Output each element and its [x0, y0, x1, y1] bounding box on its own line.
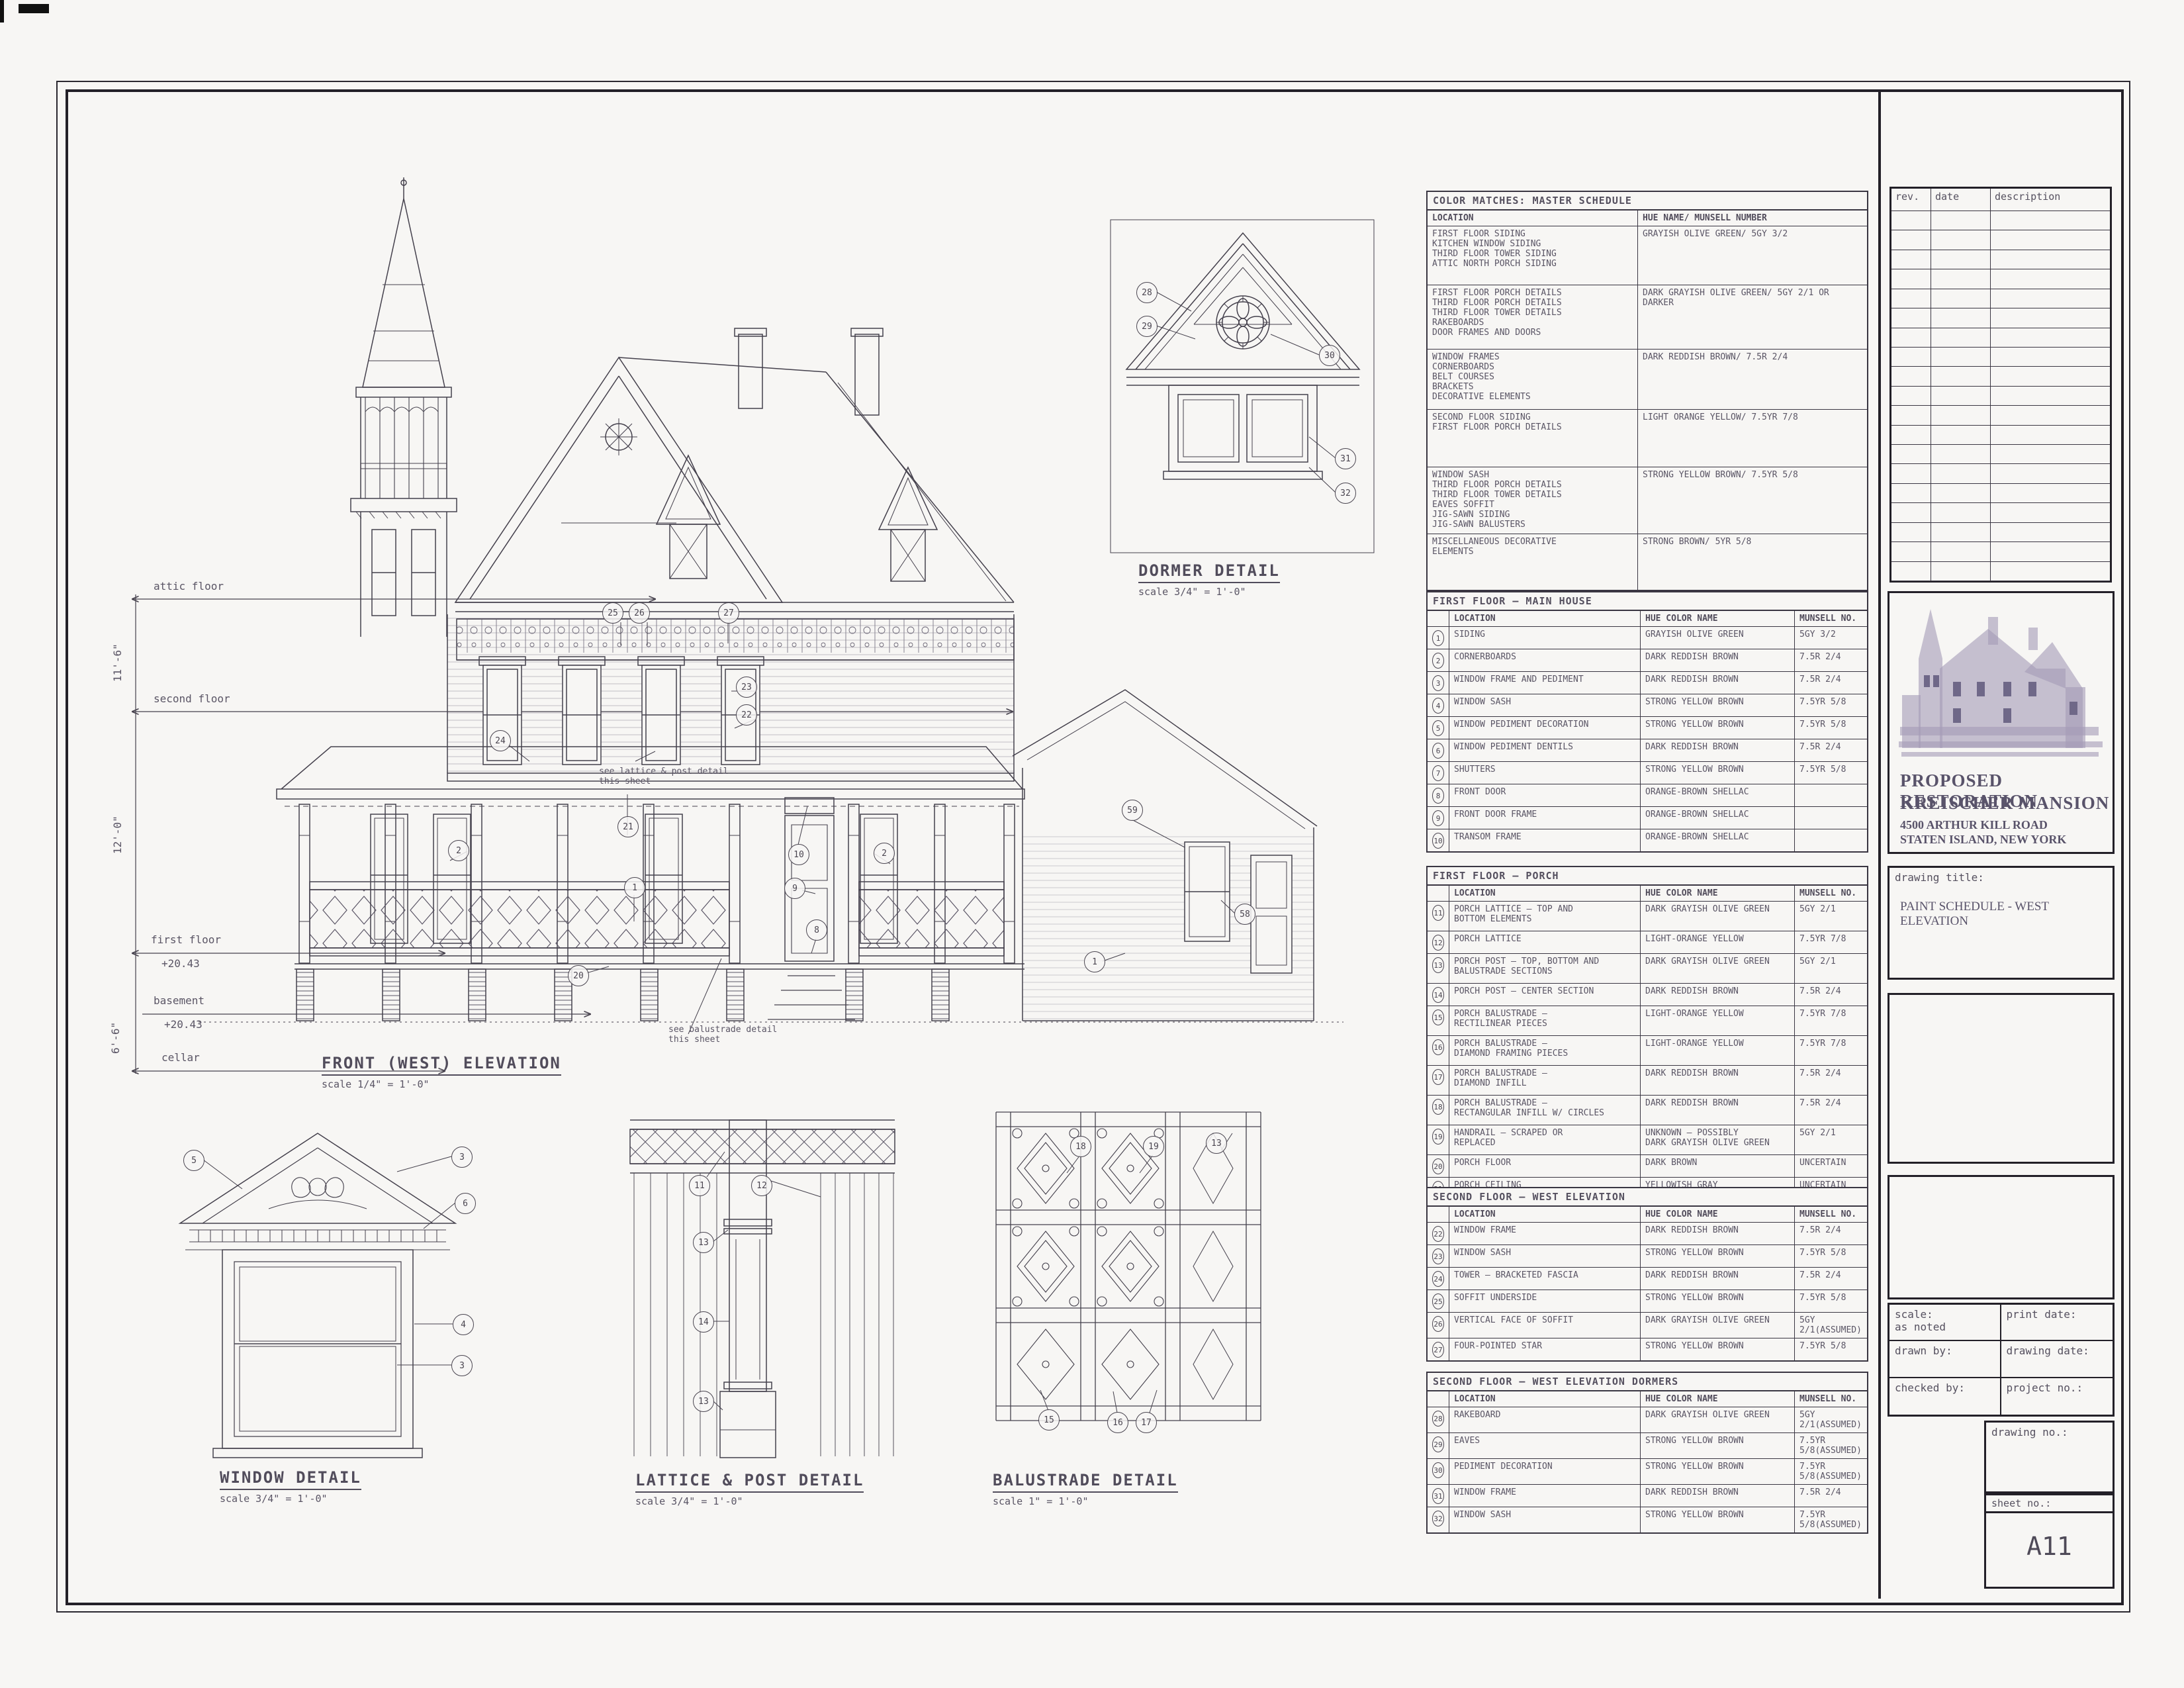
- location-cell: PORCH BALUSTRADE – RECTANGULAR INFILL W/…: [1449, 1096, 1641, 1125]
- munsell-cell: UNCERTAIN: [1795, 1155, 1867, 1177]
- schedule-row: 26VERTICAL FACE OF SOFFITDARK GRAYISH OL…: [1428, 1313, 1867, 1338]
- munsell-cell: [1795, 807, 1867, 829]
- table-title: FIRST FLOOR – PORCH: [1428, 867, 1867, 886]
- window-scale: scale 3/4" = 1'-0": [220, 1493, 361, 1505]
- schedule-row: 1SIDINGGRAYISH OLIVE GREEN5GY 3/2: [1428, 627, 1867, 649]
- titleblock-divider: [1878, 92, 1881, 1599]
- location-cell: FIRST FLOOR SIDING KITCHEN WINDOW SIDING…: [1428, 226, 1638, 285]
- munsell-cell: 7.5YR 5/8(ASSUMED): [1795, 1433, 1867, 1458]
- hue-cell: LIGHT-ORANGE YELLOW: [1641, 1006, 1795, 1035]
- location-cell: SHUTTERS: [1449, 762, 1641, 784]
- callout-number-cell: 25: [1428, 1290, 1449, 1312]
- callout-22: 22: [736, 704, 757, 726]
- hue-cell: DARK GRAYISH OLIVE GREEN: [1641, 1313, 1795, 1338]
- location-cell: FRONT DOOR: [1449, 784, 1641, 806]
- location-cell: WINDOW PEDIMENT DENTILS: [1449, 739, 1641, 761]
- callout-27: 27: [718, 602, 739, 624]
- dimension-label: +20.43: [164, 1018, 203, 1031]
- revision-row: [1891, 348, 2110, 367]
- callout-30: 30: [1319, 345, 1340, 366]
- lattice-scale: scale 3/4" = 1'-0": [635, 1495, 864, 1507]
- column-header: HUE NAME/ MUNSELL NUMBER: [1638, 211, 1867, 226]
- munsell-cell: 7.5R 2/4: [1795, 1485, 1867, 1507]
- munsell-cell: 7.5YR 5/8: [1795, 1245, 1867, 1267]
- drawing-date-label: drawing date:: [2007, 1344, 2089, 1357]
- munsell-cell: 7.5YR 5/8(ASSUMED): [1795, 1459, 1867, 1484]
- drawn-by-label: drawn by:: [1895, 1344, 1952, 1357]
- callout-circle: 18: [1432, 1099, 1444, 1115]
- balustrade-label: BALUSTRADE DETAIL scale 1" = 1'-0": [993, 1471, 1178, 1507]
- hue-cell: DARK BROWN: [1641, 1155, 1795, 1177]
- mansion-logo: [1899, 602, 2107, 768]
- callout-21: 21: [617, 816, 639, 837]
- value-cell: LIGHT ORANGE YELLOW/ 7.5YR 7/8: [1638, 410, 1867, 467]
- callout-number-cell: 8: [1428, 784, 1449, 806]
- location-cell: WINDOW FRAME: [1449, 1223, 1641, 1244]
- elevation-dormers: [657, 455, 937, 581]
- elevation-note: see lattice & post detail this sheet: [599, 767, 729, 786]
- dimension-label: attic floor: [154, 580, 224, 592]
- callout-8: 8: [806, 919, 827, 941]
- lattice-band: [630, 1120, 895, 1173]
- balustrade-scale: scale 1" = 1'-0": [993, 1495, 1178, 1507]
- sheet-no-label: sheet no.:: [1986, 1495, 2113, 1513]
- callout-circle: 2: [1432, 653, 1444, 669]
- callout-circle: 15: [1432, 1009, 1444, 1025]
- callout-number-cell: 26: [1428, 1313, 1449, 1338]
- hue-cell: DARK REDDISH BROWN: [1641, 1268, 1795, 1289]
- schedule-row: 28RAKEBOARDDARK GRAYISH OLIVE GREEN5GY 2…: [1428, 1407, 1867, 1433]
- project-address2: STATEN ISLAND, NEW YORK: [1900, 833, 2066, 847]
- revision-row: [1891, 328, 2110, 348]
- munsell-cell: 7.5R 2/4: [1795, 672, 1867, 694]
- callout-circle: 9: [1432, 810, 1444, 826]
- callout-number-cell: 13: [1428, 954, 1449, 983]
- callout-circle: 11: [1432, 905, 1444, 921]
- revision-row: [1891, 562, 2110, 581]
- number-header: [1428, 1391, 1449, 1407]
- callout-circle: 22: [1432, 1226, 1444, 1242]
- location-cell: WINDOW SASH: [1449, 694, 1641, 716]
- window-detail-drawing: [162, 1119, 493, 1463]
- location-cell: VERTICAL FACE OF SOFFIT: [1449, 1313, 1641, 1338]
- table-title: SECOND FLOOR – WEST ELEVATION DORMERS: [1428, 1373, 1867, 1391]
- schedule-row: 24TOWER – BRACKETED FASCIADARK REDDISH B…: [1428, 1268, 1867, 1290]
- hue-cell: DARK REDDISH BROWN: [1641, 649, 1795, 671]
- callout-circle: 26: [1432, 1316, 1444, 1332]
- munsell-cell: 5GY 2/1: [1795, 954, 1867, 983]
- hue-cell: DARK REDDISH BROWN: [1641, 984, 1795, 1006]
- location-cell: HANDRAIL – SCRAPED OR REPLACED: [1449, 1125, 1641, 1154]
- munsell-cell: 7.5R 2/4: [1795, 739, 1867, 761]
- callout-circle: 1: [1432, 630, 1444, 646]
- munsell-cell: 7.5YR 5/8: [1795, 717, 1867, 739]
- value-cell: STRONG YELLOW BROWN/ 7.5YR 5/8: [1638, 467, 1867, 534]
- schedule-row: WINDOW SASH THIRD FLOOR PORCH DETAILS TH…: [1428, 467, 1867, 534]
- location-cell: SIDING: [1449, 627, 1641, 649]
- callout-number-cell: 23: [1428, 1245, 1449, 1267]
- dimension-label: +20.43: [161, 957, 200, 970]
- porch-balustrade: [310, 882, 1004, 956]
- callout-number-cell: 10: [1428, 829, 1449, 851]
- schedule-row: 14PORCH POST – CENTER SECTIONDARK REDDIS…: [1428, 984, 1867, 1006]
- elevation-note: see balustrade detail this sheet: [668, 1025, 777, 1045]
- location-cell: MISCELLANEOUS DECORATIVE ELEMENTS: [1428, 534, 1638, 590]
- project-no-label: project no.:: [2007, 1382, 2083, 1394]
- scale-label: scale:: [1895, 1308, 1933, 1321]
- column-header: HUE COLOR NAME: [1641, 611, 1795, 626]
- lattice-post-detail-drawing: [625, 1105, 900, 1460]
- schedule-row: SECOND FLOOR SIDING FIRST FLOOR PORCH DE…: [1428, 410, 1867, 467]
- callout-circle: 27: [1432, 1342, 1444, 1358]
- munsell-cell: 5GY 2/1: [1795, 1125, 1867, 1154]
- callout-11: 11: [689, 1175, 710, 1196]
- schedule-row: 12PORCH LATTICELIGHT-ORANGE YELLOW7.5YR …: [1428, 931, 1867, 954]
- callout-12: 12: [751, 1175, 772, 1196]
- munsell-cell: 7.5R 2/4: [1795, 1223, 1867, 1244]
- callout-25: 25: [602, 602, 623, 624]
- dimension-label: first floor: [151, 933, 221, 946]
- location-cell: EAVES: [1449, 1433, 1641, 1458]
- callout-circle: 19: [1432, 1129, 1444, 1145]
- hue-cell: STRONG YELLOW BROWN: [1641, 1433, 1795, 1458]
- schedule-row: 10TRANSOM FRAMEORANGE-BROWN SHELLAC: [1428, 829, 1867, 851]
- location-cell: PORCH BALUSTRADE – RECTILINEAR PIECES: [1449, 1006, 1641, 1035]
- sheet: FRONT (WEST) ELEVATION scale 1/4" = 1'-0…: [0, 0, 2184, 1688]
- hue-cell: STRONG YELLOW BROWN: [1641, 762, 1795, 784]
- location-cell: PEDIMENT DECORATION: [1449, 1459, 1641, 1484]
- callout-2: 2: [874, 843, 895, 864]
- location-cell: RAKEBOARD: [1449, 1407, 1641, 1432]
- hue-cell: STRONG YELLOW BROWN: [1641, 717, 1795, 739]
- location-cell: SOFFIT UNDERSIDE: [1449, 1290, 1641, 1312]
- elevation-scale: scale 1/4" = 1'-0": [322, 1078, 561, 1090]
- callout-number-cell: 5: [1428, 717, 1449, 739]
- elevation-title: FRONT (WEST) ELEVATION: [322, 1054, 561, 1076]
- callout-number-cell: 30: [1428, 1459, 1449, 1484]
- munsell-cell: 7.5R 2/4: [1795, 1268, 1867, 1289]
- callout-circle: 8: [1432, 788, 1444, 804]
- value-cell: STRONG BROWN/ 5YR 5/8: [1638, 534, 1867, 590]
- first-floor-porch-table: FIRST FLOOR – PORCHLOCATIONHUE COLOR NAM…: [1426, 866, 1868, 1201]
- callout-circle: 31: [1432, 1488, 1444, 1504]
- callout-number-cell: 3: [1428, 672, 1449, 694]
- callout-16: 16: [1107, 1412, 1128, 1433]
- schedule-row: 16PORCH BALUSTRADE – DIAMOND FRAMING PIE…: [1428, 1036, 1867, 1066]
- callout-number-cell: 19: [1428, 1125, 1449, 1154]
- number-header: [1428, 611, 1449, 626]
- location-cell: WINDOW FRAMES CORNERBOARDS BELT COURSES …: [1428, 350, 1638, 409]
- dimension-label: basement: [154, 994, 205, 1007]
- callout-number-cell: 9: [1428, 807, 1449, 829]
- right-wing: [1013, 690, 1317, 1021]
- dimension-label: 11'-6": [111, 643, 124, 682]
- drawing-title-label: drawing title:: [1895, 871, 1984, 884]
- sheet-no-value: A11: [1986, 1513, 2113, 1579]
- hue-cell: ORANGE-BROWN SHELLAC: [1641, 807, 1795, 829]
- callout-24: 24: [490, 730, 511, 751]
- first-floor-main-house-table: FIRST FLOOR – MAIN HOUSELOCATIONHUE COLO…: [1426, 591, 1868, 853]
- rev-header: rev.: [1891, 189, 1931, 211]
- location-cell: FIRST FLOOR PORCH DETAILS THIRD FLOOR PO…: [1428, 285, 1638, 349]
- munsell-cell: 5GY 2/1(ASSUMED): [1795, 1407, 1867, 1432]
- table-title: COLOR MATCHES: MASTER SCHEDULE: [1428, 192, 1867, 211]
- callout-59: 59: [1122, 800, 1143, 821]
- callout-13: 13: [1206, 1133, 1227, 1154]
- checked-by-label: checked by:: [1895, 1382, 1965, 1394]
- sheet-no-block: sheet no.: A11: [1984, 1493, 2115, 1589]
- dimension-label: 6'-6": [109, 1022, 122, 1054]
- second-floor-dormers-table: SECOND FLOOR – WEST ELEVATION DORMERSLOC…: [1426, 1372, 1868, 1534]
- callout-circle: 7: [1432, 765, 1444, 781]
- location-cell: TRANSOM FRAME: [1449, 829, 1641, 851]
- column-header: HUE COLOR NAME: [1641, 886, 1795, 901]
- hue-cell: STRONG YELLOW BROWN: [1641, 1507, 1795, 1532]
- schedule-row: 11PORCH LATTICE – TOP AND BOTTOM ELEMENT…: [1428, 902, 1867, 931]
- revision-row: [1891, 464, 2110, 483]
- callout-28: 28: [1136, 282, 1158, 303]
- schedule-row: 31WINDOW FRAMEDARK REDDISH BROWN7.5R 2/4: [1428, 1485, 1867, 1507]
- callout-32: 32: [1335, 483, 1356, 504]
- project-address1: 4500 ARTHUR KILL ROAD: [1900, 818, 2048, 832]
- dormer-title: DORMER DETAIL: [1138, 561, 1280, 583]
- callout-19: 19: [1143, 1136, 1164, 1157]
- callout-number-cell: 1: [1428, 627, 1449, 649]
- callout-circle: 4: [1432, 698, 1444, 714]
- schedule-row: 23WINDOW SASHSTRONG YELLOW BROWN7.5YR 5/…: [1428, 1245, 1867, 1268]
- schedule-row: WINDOW FRAMES CORNERBOARDS BELT COURSES …: [1428, 350, 1867, 410]
- column-header: HUE COLOR NAME: [1641, 1207, 1795, 1222]
- column-header: MUNSELL NO.: [1795, 886, 1867, 901]
- hue-cell: STRONG YELLOW BROWN: [1641, 1338, 1795, 1360]
- dormer-window: [1163, 385, 1322, 479]
- balustrade-title: BALUSTRADE DETAIL: [993, 1471, 1178, 1493]
- munsell-cell: 7.5YR 7/8: [1795, 1006, 1867, 1035]
- schedule-row: 30PEDIMENT DECORATIONSTRONG YELLOW BROWN…: [1428, 1459, 1867, 1485]
- number-header: [1428, 886, 1449, 901]
- column-header: LOCATION: [1449, 1391, 1641, 1407]
- callout-number-cell: 32: [1428, 1507, 1449, 1532]
- callout-circle: 13: [1432, 957, 1444, 973]
- column-header: LOCATION: [1449, 1207, 1641, 1222]
- callout-31: 31: [1335, 448, 1356, 469]
- callout-14: 14: [693, 1311, 714, 1333]
- callout-10: 10: [788, 844, 809, 865]
- location-cell: PORCH POST – TOP, BOTTOM AND BALUSTRADE …: [1449, 954, 1641, 983]
- schedule-row: 20PORCH FLOORDARK BROWNUNCERTAIN: [1428, 1155, 1867, 1178]
- location-cell: CORNERBOARDS: [1449, 649, 1641, 671]
- revision-row: [1891, 445, 2110, 464]
- second-floor-west-table: SECOND FLOOR – WEST ELEVATIONLOCATIONHUE…: [1426, 1187, 1868, 1362]
- location-cell: FRONT DOOR FRAME: [1449, 807, 1641, 829]
- munsell-cell: 7.5YR 5/8: [1795, 1290, 1867, 1312]
- column-header: HUE COLOR NAME: [1641, 1391, 1795, 1407]
- dormer-scale: scale 3/4" = 1'-0": [1138, 586, 1280, 598]
- second-story-wall: [447, 614, 1014, 781]
- lattice-title: LATTICE & POST DETAIL: [635, 1471, 864, 1493]
- location-cell: WINDOW SASH: [1449, 1507, 1641, 1532]
- location-cell: WINDOW FRAME AND PEDIMENT: [1449, 672, 1641, 694]
- callout-number-cell: 20: [1428, 1155, 1449, 1177]
- callout-circle: 23: [1432, 1248, 1444, 1264]
- window-dentils: [185, 1230, 450, 1250]
- revision-row: [1891, 406, 2110, 425]
- print-date-field: print date:: [2001, 1305, 2113, 1341]
- callout-number-cell: 2: [1428, 649, 1449, 671]
- munsell-cell: 7.5R 2/4: [1795, 1066, 1867, 1095]
- schedule-row: 2CORNERBOARDSDARK REDDISH BROWN7.5R 2/4: [1428, 649, 1867, 672]
- dimension-label: cellar: [161, 1051, 200, 1064]
- callout-number-cell: 28: [1428, 1407, 1449, 1432]
- elevation-label: FRONT (WEST) ELEVATION scale 1/4" = 1'-0…: [322, 1054, 561, 1090]
- munsell-cell: [1795, 829, 1867, 851]
- hue-cell: ORANGE-BROWN SHELLAC: [1641, 784, 1795, 806]
- project-identity-block: PROPOSED RESTORATION KREISCHER MANSION 4…: [1888, 591, 2115, 854]
- scan-artifact: [0, 0, 4, 23]
- schedule-row: 9FRONT DOOR FRAMEORANGE-BROWN SHELLAC: [1428, 807, 1867, 829]
- dimension-label: second floor: [154, 692, 230, 705]
- hue-cell: GRAYISH OLIVE GREEN: [1641, 627, 1795, 649]
- revision-table: rev. date description: [1889, 187, 2112, 583]
- callout-number-cell: 12: [1428, 931, 1449, 953]
- munsell-cell: 7.5R 2/4: [1795, 649, 1867, 671]
- schedule-row: FIRST FLOOR PORCH DETAILS THIRD FLOOR PO…: [1428, 285, 1867, 350]
- schedule-row: 27FOUR-POINTED STARSTRONG YELLOW BROWN7.…: [1428, 1338, 1867, 1360]
- callout-number-cell: 16: [1428, 1036, 1449, 1065]
- revision-row: [1891, 387, 2110, 406]
- date-header: date: [1931, 189, 1991, 211]
- schedule-row: 6WINDOW PEDIMENT DENTILSDARK REDDISH BRO…: [1428, 739, 1867, 762]
- column-header: LOCATION: [1428, 211, 1638, 226]
- balustrade-detail-drawing: [989, 1102, 1274, 1446]
- callout-circle: 3: [1432, 675, 1444, 691]
- callout-26: 26: [629, 602, 650, 624]
- porch-post-section: [720, 1120, 776, 1458]
- drawing-title-value: PAINT SCHEDULE - WEST ELEVATION: [1900, 900, 2113, 929]
- schedule-row: 18PORCH BALUSTRADE – RECTANGULAR INFILL …: [1428, 1096, 1867, 1125]
- munsell-cell: 7.5YR 5/8(ASSUMED): [1795, 1507, 1867, 1532]
- munsell-cell: 7.5YR 5/8: [1795, 1338, 1867, 1360]
- beadboard: [634, 1173, 893, 1456]
- revision-row: [1891, 269, 2110, 289]
- location-cell: FOUR-POINTED STAR: [1449, 1338, 1641, 1360]
- schedule-row: 29EAVESSTRONG YELLOW BROWN7.5YR 5/8(ASSU…: [1428, 1433, 1867, 1459]
- location-cell: WINDOW SASH THIRD FLOOR PORCH DETAILS TH…: [1428, 467, 1638, 534]
- scan-artifact: [19, 4, 49, 13]
- callout-15: 15: [1038, 1409, 1060, 1430]
- callout-circle: 10: [1432, 833, 1444, 849]
- window-label: WINDOW DETAIL scale 3/4" = 1'-0": [220, 1468, 361, 1505]
- callout-58: 58: [1234, 904, 1255, 925]
- revision-row: [1891, 523, 2110, 542]
- schedule-row: 19HANDRAIL – SCRAPED OR REPLACEDUNKNOWN …: [1428, 1125, 1867, 1155]
- dormer-detail-drawing: [1099, 212, 1383, 563]
- drawing-date-field: drawing date:: [2001, 1341, 2113, 1378]
- hue-cell: DARK GRAYISH OLIVE GREEN: [1641, 902, 1795, 931]
- revision-row: [1891, 289, 2110, 308]
- balustrade-rails: [996, 1112, 1261, 1421]
- callout-number-cell: 31: [1428, 1485, 1449, 1507]
- main-roof: [455, 328, 1014, 612]
- callout-number-cell: 6: [1428, 739, 1449, 761]
- hue-cell: DARK REDDISH BROWN: [1641, 1223, 1795, 1244]
- location-cell: PORCH LATTICE – TOP AND BOTTOM ELEMENTS: [1449, 902, 1641, 931]
- callout-circle: 5: [1432, 720, 1444, 736]
- schedule-row: 7SHUTTERSSTRONG YELLOW BROWN7.5YR 5/8: [1428, 762, 1867, 784]
- value-cell: DARK GRAYISH OLIVE GREEN/ 5GY 2/1 OR DAR…: [1638, 285, 1867, 349]
- hue-cell: DARK REDDISH BROWN: [1641, 1066, 1795, 1095]
- munsell-cell: 7.5YR 5/8: [1795, 762, 1867, 784]
- callout-3: 3: [451, 1355, 473, 1376]
- callout-2: 2: [448, 840, 469, 861]
- callout-23: 23: [736, 677, 757, 698]
- callout-number-cell: 7: [1428, 762, 1449, 784]
- tower: [351, 177, 457, 637]
- callout-circle: 29: [1432, 1436, 1444, 1452]
- callout-17: 17: [1136, 1412, 1157, 1433]
- location-cell: PORCH POST – CENTER SECTION: [1449, 984, 1641, 1006]
- scale-field: scale:as noted: [1889, 1305, 2001, 1341]
- window-pediment: [180, 1133, 455, 1223]
- project-no-field: project no.:: [2001, 1378, 2113, 1415]
- callout-6: 6: [455, 1193, 476, 1214]
- print-date-label: print date:: [2007, 1308, 2077, 1321]
- schedule-row: MISCELLANEOUS DECORATIVE ELEMENTSSTRONG …: [1428, 534, 1867, 590]
- callout-1: 1: [1084, 951, 1105, 972]
- revision-row: [1891, 503, 2110, 522]
- callout-9: 9: [784, 878, 805, 899]
- hue-cell: DARK REDDISH BROWN: [1641, 672, 1795, 694]
- munsell-cell: 7.5YR 7/8: [1795, 1036, 1867, 1065]
- munsell-cell: 7.5R 2/4: [1795, 984, 1867, 1006]
- callout-circle: 16: [1432, 1039, 1444, 1055]
- table-title: SECOND FLOOR – WEST ELEVATION: [1428, 1188, 1867, 1207]
- fields-block: scale:as noted print date: drawn by: dra…: [1888, 1303, 2115, 1417]
- schedule-row: 32WINDOW SASHSTRONG YELLOW BROWN7.5YR 5/…: [1428, 1507, 1867, 1532]
- hue-cell: STRONG YELLOW BROWN: [1641, 1245, 1795, 1267]
- callout-circle: 28: [1432, 1411, 1444, 1427]
- schedule-row: 13PORCH POST – TOP, BOTTOM AND BALUSTRAD…: [1428, 954, 1867, 984]
- location-cell: TOWER – BRACKETED FASCIA: [1449, 1268, 1641, 1289]
- location-cell: WINDOW FRAME: [1449, 1485, 1641, 1507]
- callout-circle: 30: [1432, 1462, 1444, 1478]
- callout-13: 13: [693, 1232, 714, 1253]
- hue-cell: DARK GRAYISH OLIVE GREEN: [1641, 954, 1795, 983]
- drawing-no-label: drawing no.:: [1991, 1426, 2068, 1438]
- callout-number-cell: 29: [1428, 1433, 1449, 1458]
- titleblock-empty-box-1: [1888, 993, 2115, 1164]
- callout-3: 3: [451, 1147, 473, 1168]
- master-schedule-table: COLOR MATCHES: MASTER SCHEDULELOCATIONHU…: [1426, 191, 1868, 591]
- callout-number-cell: 22: [1428, 1223, 1449, 1244]
- callout-number-cell: 11: [1428, 902, 1449, 931]
- schedule-row: 25SOFFIT UNDERSIDESTRONG YELLOW BROWN7.5…: [1428, 1290, 1867, 1313]
- lattice-label: LATTICE & POST DETAIL scale 3/4" = 1'-0": [635, 1471, 864, 1507]
- location-cell: PORCH FLOOR: [1449, 1155, 1641, 1177]
- hue-cell: DARK REDDISH BROWN: [1641, 739, 1795, 761]
- balustrade-panels: [1013, 1129, 1233, 1399]
- location-cell: WINDOW PEDIMENT DECORATION: [1449, 717, 1641, 739]
- revision-row: [1891, 308, 2110, 328]
- hue-cell: STRONG YELLOW BROWN: [1641, 694, 1795, 716]
- porch-steps: [768, 976, 855, 1019]
- callout-4: 4: [453, 1314, 474, 1335]
- number-header: [1428, 1207, 1449, 1222]
- callout-number-cell: 24: [1428, 1268, 1449, 1289]
- hue-cell: LIGHT-ORANGE YELLOW: [1641, 931, 1795, 953]
- window-title: WINDOW DETAIL: [220, 1468, 361, 1490]
- table-title: FIRST FLOOR – MAIN HOUSE: [1428, 592, 1867, 611]
